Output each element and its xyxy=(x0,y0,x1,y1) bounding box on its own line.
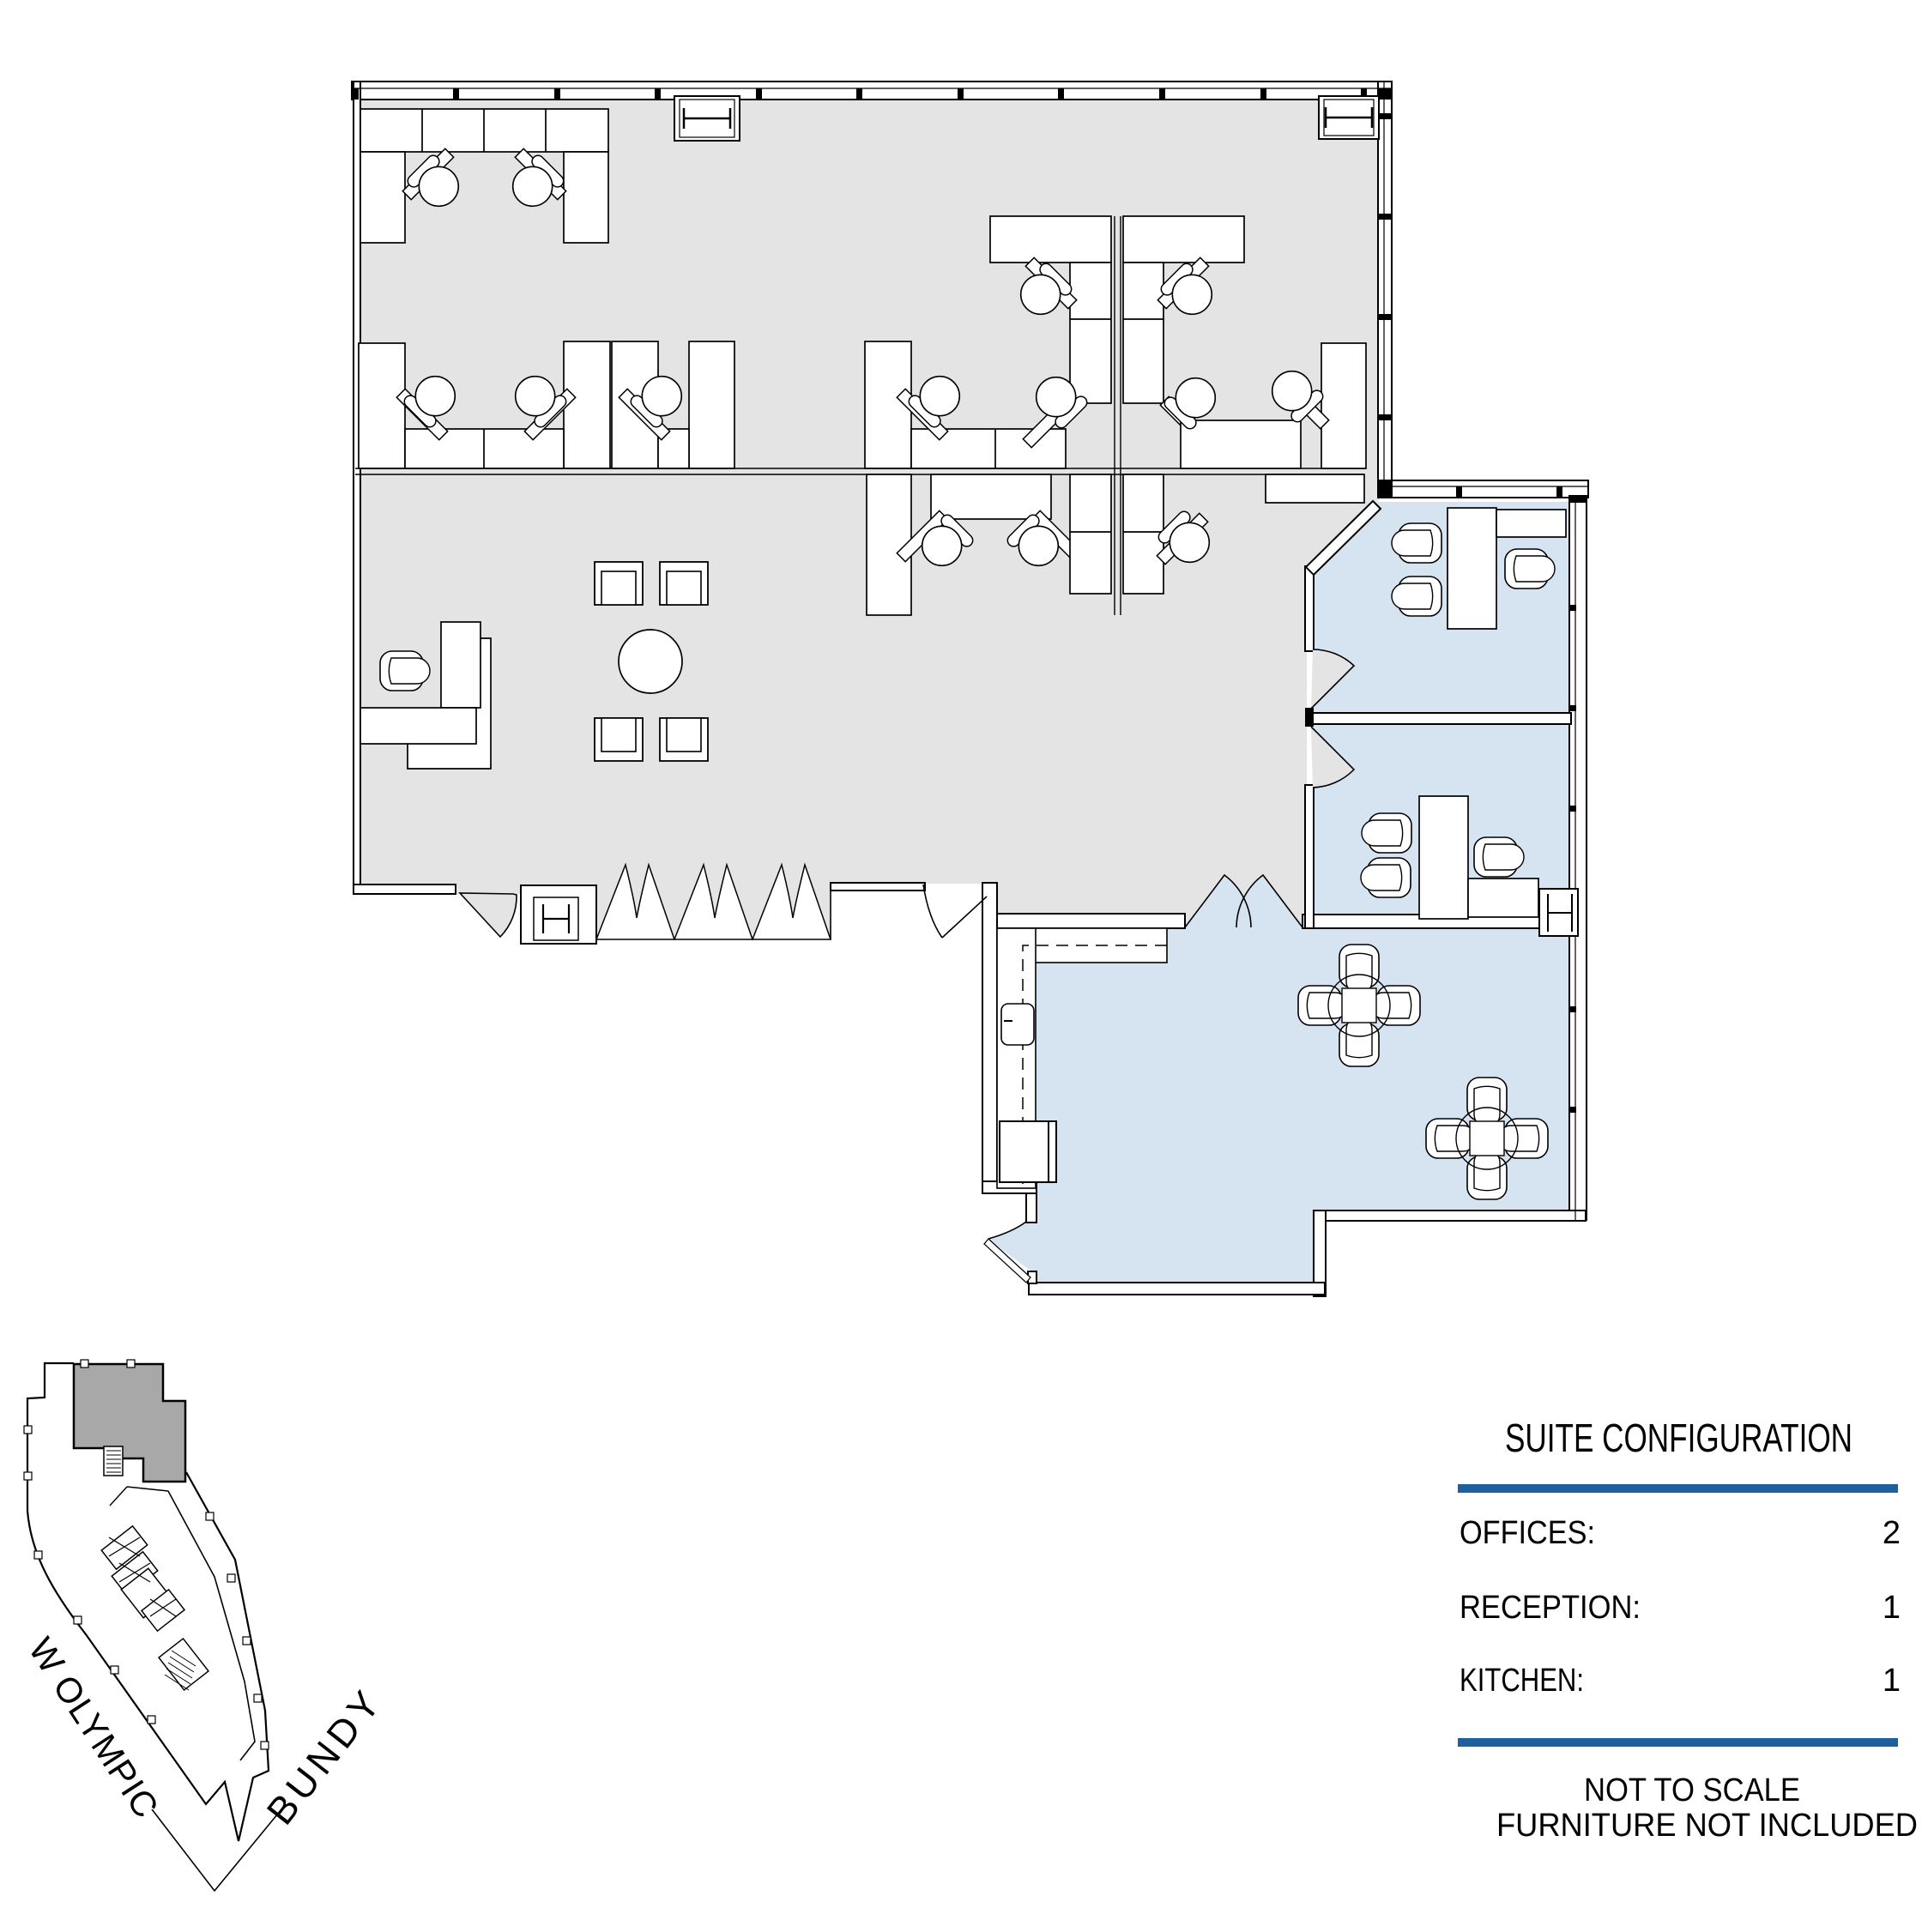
svg-text:1: 1 xyxy=(1883,1663,1901,1699)
svg-text:W OLYMPIC: W OLYMPIC xyxy=(21,1631,166,1826)
svg-text:NOT TO SCALE: NOT TO SCALE xyxy=(1584,1772,1800,1808)
svg-text:1: 1 xyxy=(1883,1590,1901,1626)
svg-text:SUITE CONFIGURATION: SUITE CONFIGURATION xyxy=(1505,1416,1852,1460)
svg-text:OFFICES:: OFFICES: xyxy=(1460,1515,1595,1551)
svg-text:FURNITURE NOT INCLUDED: FURNITURE NOT INCLUDED xyxy=(1496,1808,1918,1844)
svg-text:BUNDY: BUNDY xyxy=(258,1679,392,1832)
svg-text:KITCHEN:: KITCHEN: xyxy=(1460,1663,1584,1699)
svg-text:2: 2 xyxy=(1883,1515,1901,1551)
svg-text:RECEPTION:: RECEPTION: xyxy=(1460,1590,1641,1626)
